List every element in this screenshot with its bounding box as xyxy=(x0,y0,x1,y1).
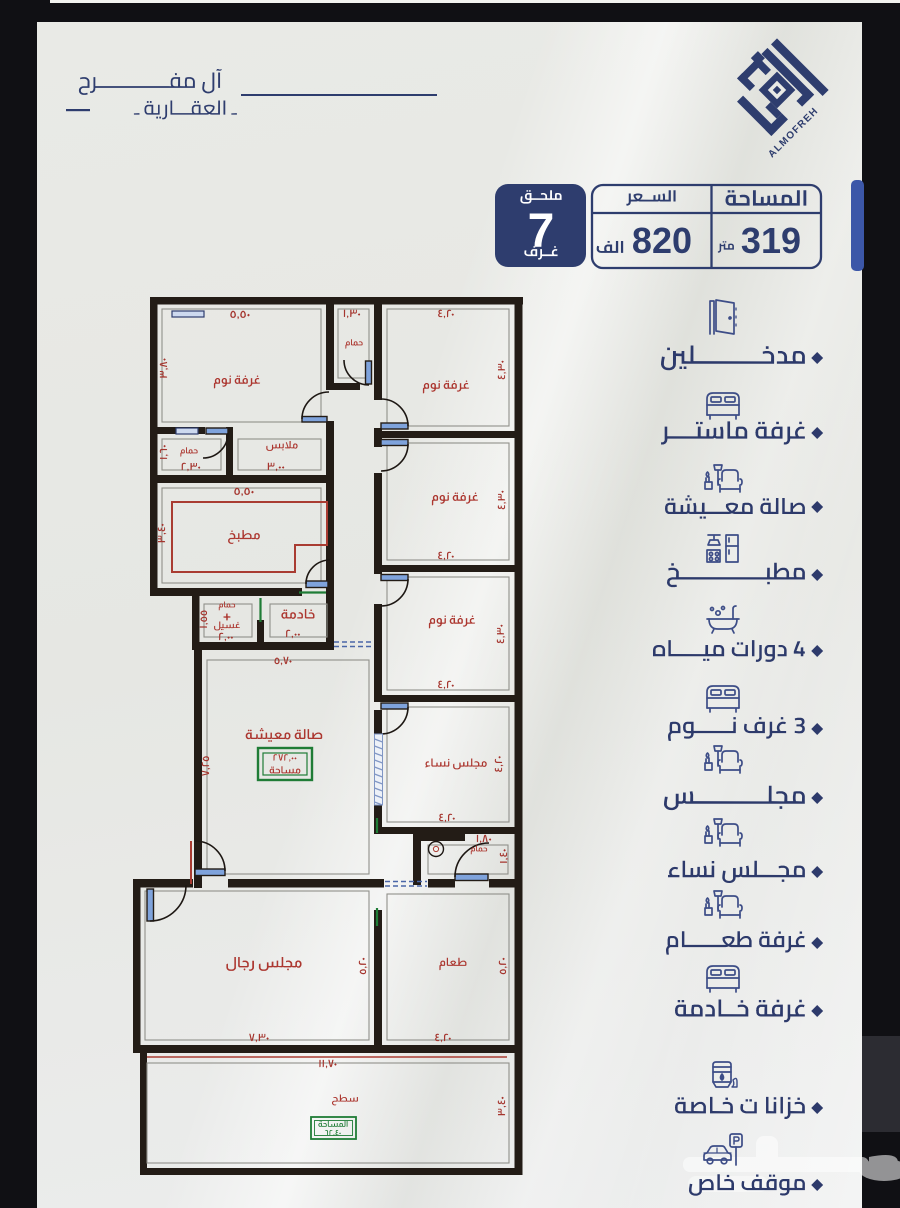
svg-text:820: 820 xyxy=(632,220,692,261)
svg-text:319: 319 xyxy=(741,220,801,261)
